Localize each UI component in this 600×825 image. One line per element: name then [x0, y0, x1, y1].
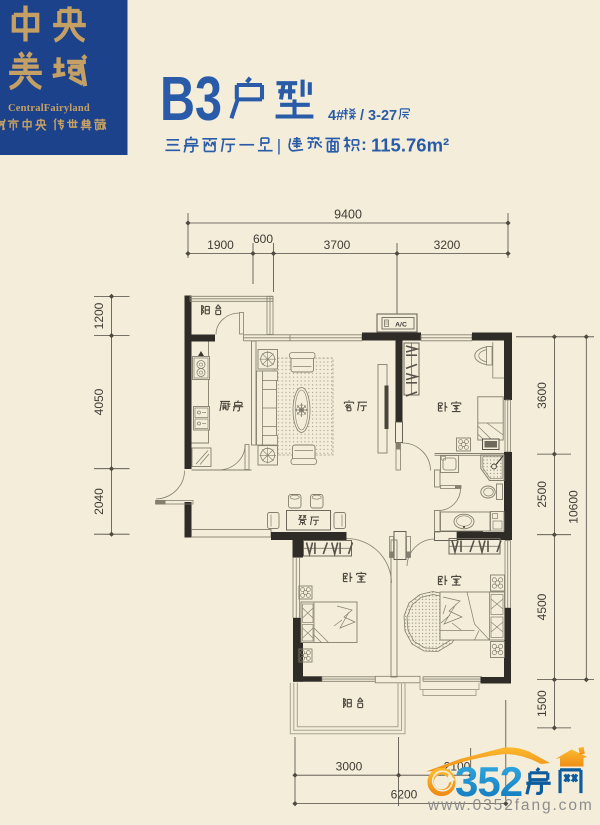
svg-text:10600: 10600: [567, 490, 581, 524]
svg-text:/ 3-27: / 3-27: [360, 108, 397, 124]
svg-text:A/C: A/C: [395, 321, 407, 328]
svg-text:B3: B3: [160, 65, 222, 134]
svg-text:4500: 4500: [535, 593, 549, 620]
svg-text:4050: 4050: [92, 388, 106, 415]
svg-text:2040: 2040: [92, 488, 106, 515]
svg-text:3200: 3200: [434, 238, 461, 252]
svg-text:9400: 9400: [334, 208, 362, 222]
svg-text:3000: 3000: [336, 760, 363, 774]
svg-text:www.0352fang.com: www.0352fang.com: [427, 797, 594, 814]
svg-text:1500: 1500: [535, 690, 549, 717]
svg-text:3600: 3600: [535, 382, 549, 409]
svg-text:600: 600: [253, 232, 273, 246]
svg-text::: :: [361, 135, 367, 154]
svg-text:2500: 2500: [535, 481, 549, 508]
svg-text:1900: 1900: [207, 238, 234, 252]
svg-text:1200: 1200: [92, 302, 106, 329]
svg-text:6200: 6200: [391, 788, 418, 802]
svg-text:3700: 3700: [324, 238, 351, 252]
svg-text:115.76m²: 115.76m²: [371, 135, 449, 156]
svg-text:|: |: [277, 136, 281, 155]
svg-text:4#: 4#: [328, 108, 344, 124]
svg-text:CentralFairyland: CentralFairyland: [8, 103, 90, 114]
